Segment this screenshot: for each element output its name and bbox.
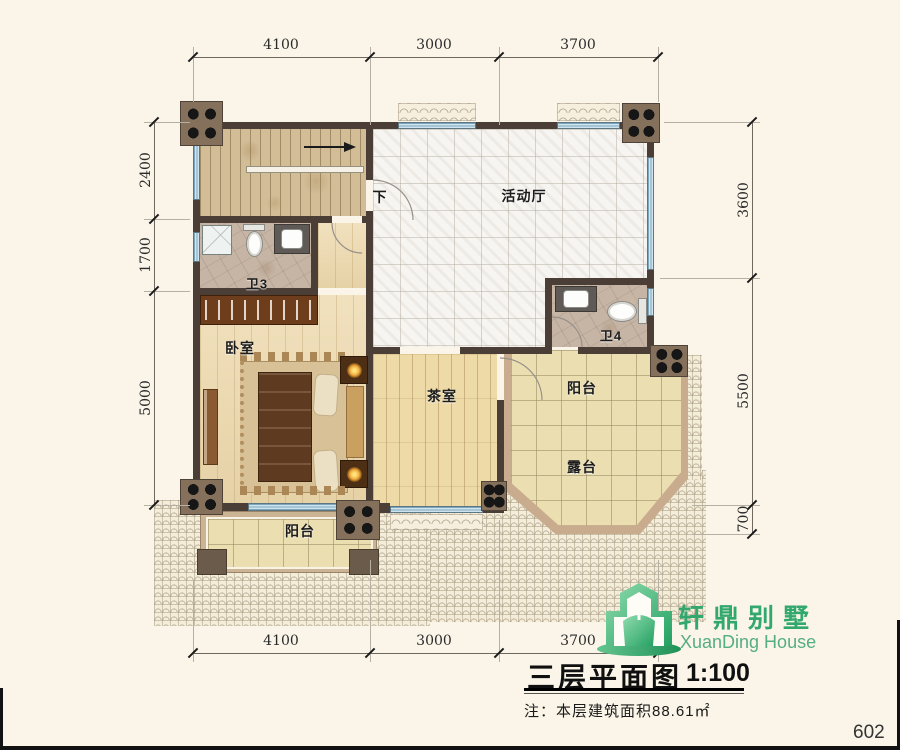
logo-name-cn: 轩鼎别墅	[678, 598, 818, 635]
planter-band	[557, 103, 620, 121]
area-note: 注：本层建筑面积88.61㎡	[524, 700, 711, 721]
extension-line	[370, 47, 371, 125]
dim-left-2: 1700	[138, 237, 154, 273]
dim-right-3: 700	[736, 506, 752, 533]
bench	[203, 389, 218, 465]
wall	[193, 216, 332, 223]
wall	[193, 262, 200, 511]
window	[193, 232, 200, 262]
dim-right-1: 3600	[736, 182, 752, 218]
room-label-down: 下	[373, 187, 388, 207]
extension-line	[499, 47, 500, 125]
column-pillar	[180, 479, 223, 515]
wall	[311, 223, 318, 288]
wall	[647, 316, 654, 347]
room-label-bath4: 卫4	[600, 326, 622, 345]
pillow	[313, 373, 340, 417]
planter-band	[390, 514, 483, 530]
planter-band	[398, 103, 476, 121]
dim-bottom-2: 3000	[416, 633, 452, 649]
wall	[545, 347, 552, 354]
corridor-floor	[318, 223, 366, 288]
stair-handrail	[246, 166, 364, 173]
dimension-line	[193, 653, 659, 654]
room-label-bath3: 卫3	[246, 274, 268, 293]
title-underline-thin	[524, 693, 744, 694]
window	[193, 143, 200, 200]
room-label-tea: 茶室	[427, 386, 457, 406]
room-label-hall: 活动厅	[502, 186, 547, 206]
toilet	[246, 231, 263, 257]
dimension-line	[752, 122, 753, 535]
dim-top-1: 4100	[263, 37, 299, 53]
headboard	[346, 386, 364, 458]
wall	[193, 122, 398, 129]
extension-line	[664, 122, 760, 123]
window	[398, 122, 476, 129]
toilet	[607, 301, 637, 322]
wall	[460, 347, 547, 354]
column-pillar	[650, 345, 688, 377]
toilet-tank	[243, 224, 265, 231]
wall	[476, 122, 557, 129]
balcony-post	[197, 549, 227, 575]
room-label-terrace: 露台	[567, 457, 597, 477]
column-pillar	[180, 101, 223, 146]
page-border-bottom	[0, 746, 900, 750]
dim-left-3: 5000	[138, 380, 154, 416]
extension-line	[658, 560, 659, 662]
toilet-tank	[638, 298, 647, 324]
window	[248, 503, 338, 511]
nightstand	[340, 356, 368, 384]
shower	[202, 225, 232, 255]
bed-valance	[240, 352, 348, 361]
wall	[578, 347, 660, 354]
room-label-balcony-right: 阳台	[567, 378, 597, 398]
column-pillar	[481, 481, 507, 511]
tearoom-floor	[373, 354, 497, 506]
extension-line	[370, 560, 371, 662]
sink-basin	[563, 290, 589, 308]
wall	[366, 129, 373, 180]
dim-left-1: 2400	[138, 152, 154, 188]
window	[647, 157, 654, 270]
wall	[545, 278, 652, 285]
wall	[373, 347, 400, 354]
dim-right-2: 5500	[736, 373, 752, 409]
extension-line	[499, 520, 500, 662]
window	[557, 122, 620, 129]
dimension-line	[193, 57, 659, 58]
dim-top-2: 3000	[416, 37, 452, 53]
wardrobe	[200, 295, 318, 325]
window	[390, 506, 483, 513]
plan-scale: 1:100	[686, 659, 750, 688]
bed-valance	[240, 486, 348, 495]
balcony-post	[349, 549, 379, 575]
nightstand	[340, 460, 368, 488]
logo-name-en: XuanDing House	[680, 632, 816, 653]
column-pillar	[336, 500, 380, 540]
dimension-line	[154, 122, 155, 506]
extension-line	[660, 278, 760, 279]
sink-basin	[281, 229, 303, 249]
dim-bottom-1: 4100	[263, 633, 299, 649]
floor-plan-page: 活动厅 下 卫3 卧室 茶室 卫4 阳台 露台 阳台 4100 3000 370…	[0, 0, 900, 750]
dim-bottom-3: 3700	[560, 633, 596, 649]
wardrobe-hangers	[205, 300, 313, 320]
dim-top-3: 3700	[560, 37, 596, 53]
title-underline	[524, 688, 744, 691]
room-label-balcony-bottom: 阳台	[285, 521, 315, 541]
page-border-left	[0, 688, 3, 750]
bed-blanket	[258, 372, 312, 482]
wall	[545, 285, 552, 347]
lamp-icon	[347, 467, 362, 482]
lamp-icon	[347, 363, 362, 378]
wall	[647, 270, 654, 288]
room-label-bedroom: 卧室	[225, 338, 255, 358]
page-number: 602	[853, 722, 885, 744]
column-pillar	[622, 103, 660, 143]
window	[647, 288, 654, 316]
